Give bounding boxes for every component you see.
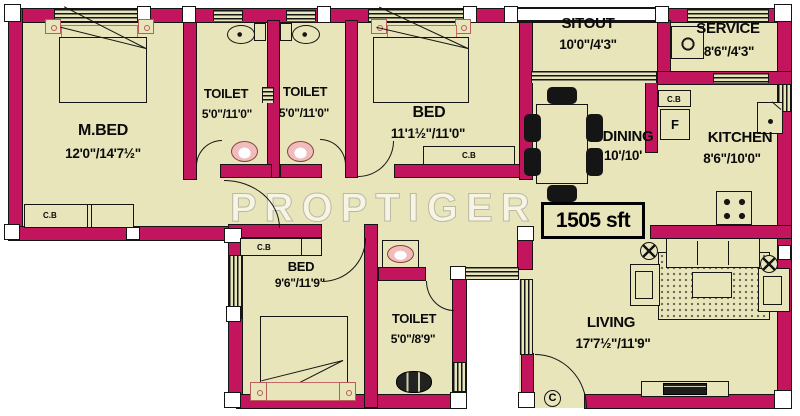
pillar [4,4,21,22]
coffee-table [692,272,732,298]
pillar [182,6,196,23]
room-label-dining: DINING [603,128,654,145]
dining-chair [586,148,603,176]
room-label-bed2: BED [288,259,315,274]
cupboard: C.B [658,90,691,107]
wall-bed1-south [394,164,533,178]
bed-icon [373,37,469,103]
dining-chair [547,185,577,202]
sofa-icon [666,238,760,268]
shower-icon [262,87,274,103]
pillar [504,6,518,23]
room-dims-service: 8'6"/4'3" [704,44,754,59]
vent-toilet1 [213,10,243,21]
wall-toilet1-south [220,164,272,178]
cupboard: C.B [240,238,322,256]
room-label-toilet1: TOILET [204,86,248,101]
room-label-toilet3: TOILET [392,311,436,326]
washbasin-icon [287,141,314,162]
bed-icon [260,316,348,386]
window-notch-north [465,267,519,280]
cupboard: C.B [423,146,515,165]
wall-kitchen-south [650,225,792,239]
room-label-living: LIVING [587,314,635,331]
armchair-icon [630,264,660,306]
room-dims-mbed: 12'0"/14'7½" [65,146,141,161]
room-dims-bed2: 9'6"/11'9" [275,276,325,290]
room-dims-toilet2: 5'0"/11'0" [279,106,329,120]
dining-chair [524,114,541,142]
wall-toilet2-south [280,164,322,178]
window-service-kitchen [713,73,769,83]
pillar [4,224,20,240]
pillar [450,392,467,409]
room-label-service: SERVICE [696,20,759,37]
dining-chair [524,148,541,176]
pillar [774,390,792,409]
dining-table [536,104,588,184]
wall-sitout-service-divider [657,20,671,74]
window-living-west [520,279,533,355]
room-label-bed1: BED [413,104,446,122]
stove-icon [716,191,752,225]
cupboard-label: C.B [257,243,271,252]
room-dims-sitout: 10'0"/4'3" [559,37,617,52]
cupboard-label: C.B [667,95,681,104]
floor-plan: PROPTIGER [0,0,800,416]
bed-post-icon [250,382,267,401]
cupboard: C.B [24,204,134,228]
room-label-mbed: M.BED [78,122,128,140]
wc-icon [292,25,320,44]
vent-toilet3 [453,362,466,392]
room-dims-toilet3: 5'0"/8'9" [391,332,435,346]
room-dims-living: 17'7½"/11'9" [576,336,651,351]
pillar [517,226,534,241]
pillar [518,392,535,408]
dining-chair [547,87,577,104]
wc-icon [396,371,432,393]
cupboard-label: C.B [43,211,57,220]
dining-chair [586,114,603,142]
bed-post-icon [45,19,61,34]
fridge-box: F [660,109,690,140]
wall-right [777,8,792,409]
outside-notch [467,280,519,408]
wall-bed2-toilet3-divider [364,224,378,408]
bed-post-icon [455,19,471,34]
wall-toilet3-north [378,267,426,281]
wc-icon [227,25,255,44]
room-dims-toilet1: 5'0"/11'0" [202,107,252,121]
pillar [655,6,669,23]
pillar [126,227,140,240]
ceiling-fan-icon [760,255,778,273]
bed-icon [59,37,147,103]
wc-tank-icon [254,23,266,41]
pillar [226,306,241,322]
vent-toilet2 [286,10,316,21]
pillar [224,392,241,408]
pillar [774,4,792,22]
pillar [778,245,791,260]
washbasin-icon [231,141,258,162]
armchair-icon [758,268,790,312]
ceiling-fan-icon [640,242,658,260]
room-label-toilet2: TOILET [283,84,327,99]
room-dims-bed1: 11'1½"/11'0" [391,126,465,141]
wall-left [8,8,23,240]
cupboard-label: C.B [462,151,476,160]
wall-bed1-west [345,20,358,178]
pillar [450,266,466,280]
wall-mbed-south [8,226,242,241]
bed-post-icon [138,19,154,34]
pillar [317,6,331,23]
room-dims-dining: 10'/10' [604,148,642,163]
main-door-label: C [544,390,561,407]
room-label-kitchen: KITCHEN [708,129,773,146]
wall-living-west-lower [521,353,534,397]
tv-icon [663,383,707,395]
washbasin-icon [387,245,414,263]
window-mbed [54,9,140,22]
room-label-sitout: SITOUT [562,15,615,32]
bed-post-icon [339,382,356,401]
area-box: 1505 sft [541,202,645,239]
room-dims-kitchen: 8'6"/10'0" [703,151,761,166]
window-sitout-dining [531,71,657,83]
wall-living-west-upper [517,240,533,270]
wc-tank-icon [280,23,292,41]
wall-mbed-east [183,22,197,180]
